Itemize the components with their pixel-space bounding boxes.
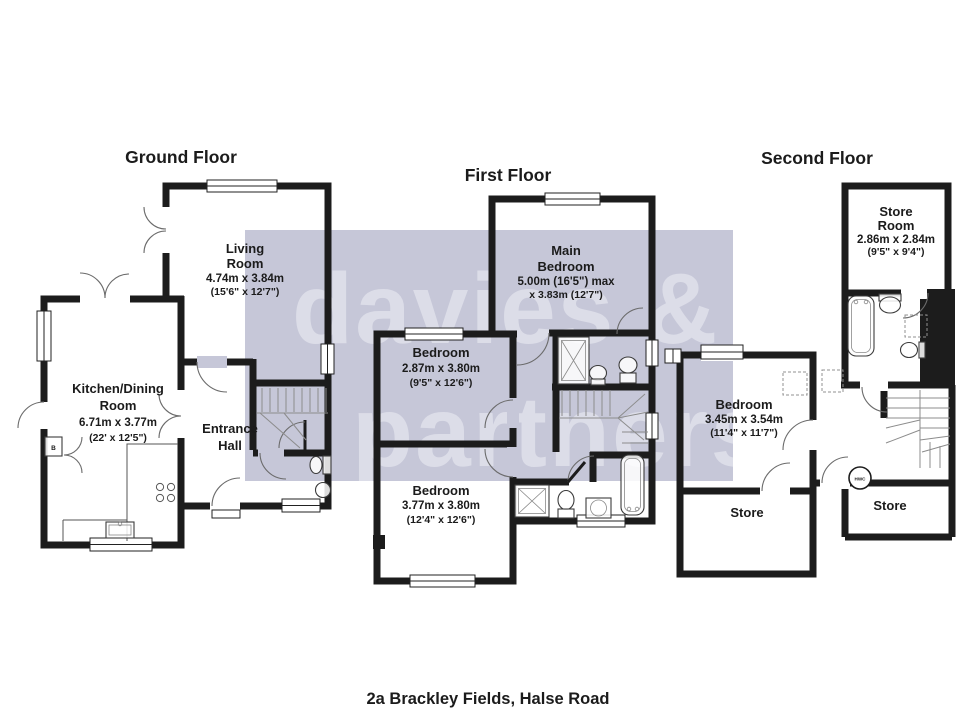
hot-water-cylinder: HWC (849, 467, 871, 489)
skylight-icon (783, 372, 807, 395)
basin-icon (590, 366, 607, 381)
kitchen-dims: 6.71m x 3.77m (79, 417, 157, 429)
floorplan-page: davies & partners Ground Floor (0, 0, 980, 712)
store-left-label: Store (730, 505, 763, 520)
sink-icon (106, 522, 134, 538)
hwc-label: HWC (855, 477, 867, 482)
svg-text:Room: Room (878, 218, 915, 233)
second-floor-stairs (886, 390, 950, 468)
basin-icon (586, 498, 611, 518)
store-left-door-opening (760, 485, 790, 497)
second-bathroom-fixtures (848, 294, 927, 358)
entrance-hall-label: Entrance (202, 421, 258, 436)
kitchen-hall-door-opening (175, 390, 187, 438)
svg-text:Room: Room (227, 256, 264, 271)
toilet-icon (323, 456, 331, 474)
store-room-dims: 2.86m x 2.84m (857, 234, 935, 246)
living-room-dims: 4.74m x 3.84m (206, 273, 284, 285)
bedroom2-dims: 2.87m x 3.80m (402, 363, 480, 375)
second-bedroom-dims: 3.45m x 3.54m (705, 414, 783, 426)
svg-text:(12'4" x 12'6"): (12'4" x 12'6") (407, 514, 476, 526)
ground-floor-title: Ground Floor (125, 147, 237, 167)
watermark-text-line2: partners (352, 376, 768, 488)
kitchen-side-door-opening (38, 402, 50, 429)
bathroom-door-opening (860, 380, 888, 391)
second-floor-title: Second Floor (761, 148, 873, 168)
living-hall-door-opening (197, 356, 227, 368)
front-door-step (212, 510, 240, 518)
svg-text:(11'4" x 11'7"): (11'4" x 11'7") (710, 427, 778, 439)
svg-text:Bedroom: Bedroom (537, 259, 594, 274)
landing-door-opening (820, 477, 850, 489)
second-bedroom-label: Bedroom (715, 397, 772, 412)
store-room-door-opening (901, 287, 927, 299)
bedroom-door-opening (807, 420, 819, 450)
svg-text:(9'5" x 9'4"): (9'5" x 9'4") (868, 246, 925, 258)
svg-text:(15'6" x 12'7"): (15'6" x 12'7") (211, 286, 280, 298)
toilet-icon (919, 342, 925, 358)
living-room-label: Living (226, 241, 264, 256)
store-right-label: Store (873, 498, 906, 513)
main-bedroom-dims: 5.00m (16'5") max (517, 276, 615, 288)
kitchen-counter (63, 444, 178, 541)
wc-door-opening (258, 448, 284, 458)
svg-text:x 3.83m (12'7"): x 3.83m (12'7") (529, 289, 602, 301)
address-caption: 2a Brackley Fields, Halse Road (366, 690, 609, 708)
boiler-label: B (51, 445, 56, 452)
main-bedroom-label: Main (551, 243, 581, 258)
svg-text:Hall: Hall (218, 438, 242, 453)
basin-icon (316, 483, 331, 498)
hob-icon (156, 483, 174, 501)
svg-text:(9'5" x 12'6"): (9'5" x 12'6") (410, 377, 473, 389)
second-floor-labels: Store Room 2.86m x 2.84m (9'5" x 9'4") B… (705, 204, 935, 520)
svg-text:Room: Room (100, 398, 137, 413)
bedroom2-label: Bedroom (412, 345, 469, 360)
toilet-icon (558, 491, 574, 510)
store-room-label: Store (879, 204, 912, 219)
second-floor-plan: Second Floor (665, 148, 955, 574)
kitchen-label: Kitchen/Dining (72, 381, 164, 396)
french-door-opening (161, 207, 172, 253)
bedroom2-door-opening (507, 398, 519, 428)
bedroom3-door-opening (507, 447, 519, 477)
floorplan-drawing: davies & partners Ground Floor (0, 0, 980, 712)
first-floor-title: First Floor (465, 165, 552, 185)
bedroom3-dims: 3.77m x 3.80m (402, 500, 480, 512)
boiler-cupboard: B (45, 437, 82, 473)
toilet-icon (619, 357, 637, 373)
bedroom3-label: Bedroom (412, 483, 469, 498)
skylight-icon (822, 370, 843, 392)
svg-text:(22' x 12'5"): (22' x 12'5") (89, 432, 147, 444)
